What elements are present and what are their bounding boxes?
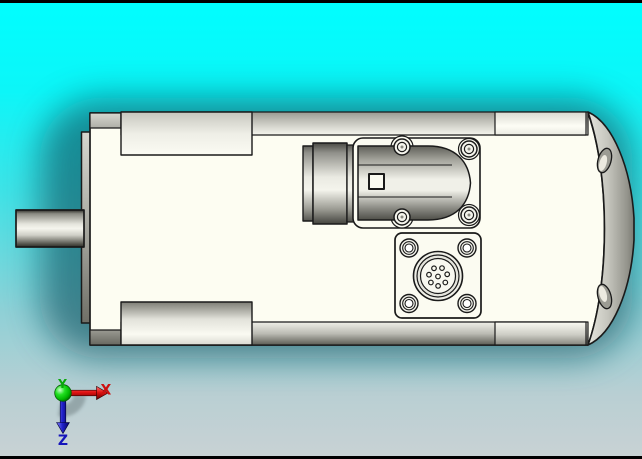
y-axis-label: Y (57, 377, 67, 391)
cad-viewport[interactable]: X Y Z (0, 0, 642, 459)
motor-shaft (16, 210, 84, 247)
motor-model[interactable] (16, 112, 634, 345)
screw-icon (400, 295, 418, 313)
screw-icon (461, 141, 477, 157)
flange-bottom-cap (90, 330, 121, 345)
rib-bottom-left (121, 302, 252, 345)
viewport-frame-top (0, 0, 642, 3)
circular-connector-plate[interactable] (395, 233, 481, 318)
rib-bottom-right (495, 322, 586, 345)
plug-barrel (313, 143, 347, 224)
rib-top-right (495, 112, 586, 135)
housing-square-port (369, 174, 384, 189)
circular-connector (414, 252, 463, 301)
axis-triad[interactable]: X Y Z (55, 377, 112, 449)
screw-icon (400, 239, 418, 257)
screw-icon (458, 295, 476, 313)
screw-icon (394, 139, 410, 155)
screw-icon (458, 239, 476, 257)
flange-top-cap (90, 113, 121, 128)
rib-top-left (121, 112, 252, 155)
cad-viewport-canvas[interactable]: X Y Z (0, 0, 642, 459)
screw-icon (394, 209, 410, 225)
z-axis-label: Z (58, 433, 68, 449)
screw-icon (461, 207, 477, 223)
x-axis-label: X (101, 383, 112, 399)
plug-barrel-end-ring (303, 146, 313, 221)
connector-housing-assembly[interactable] (303, 136, 480, 228)
